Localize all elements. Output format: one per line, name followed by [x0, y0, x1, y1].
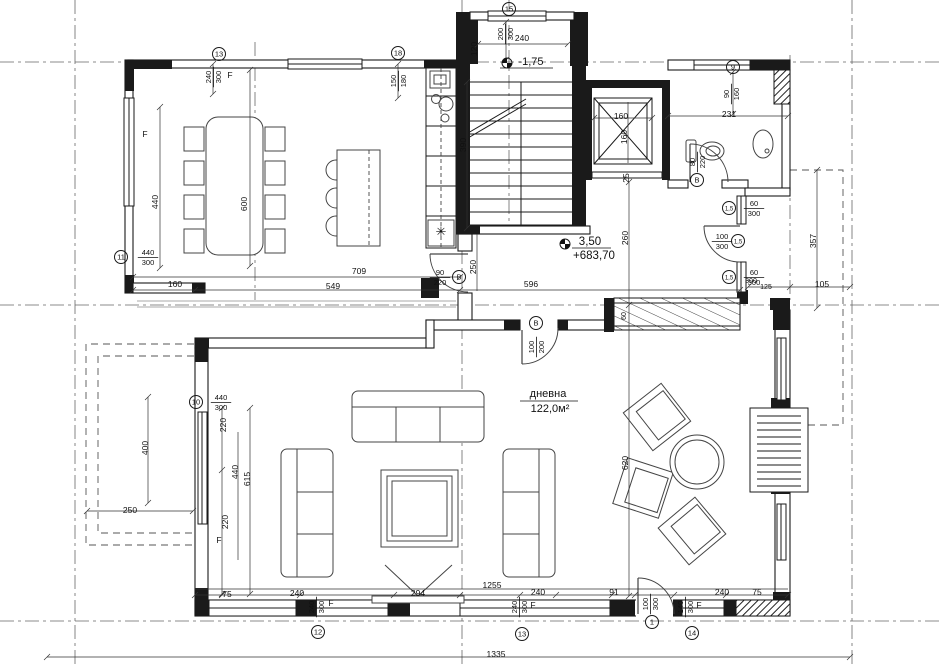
svg-text:13: 13 [215, 50, 223, 59]
dimension-fraction: 60300 [744, 199, 764, 218]
room-name: дневна [530, 388, 568, 400]
svg-text:150: 150 [389, 75, 398, 88]
room-label: дневна 122,0м² [520, 388, 578, 415]
svg-text:220: 220 [434, 278, 447, 287]
dimension-label: 250 [468, 260, 478, 274]
dimension-fraction: 80220 [688, 152, 707, 172]
dining-table [206, 117, 263, 255]
svg-text:240: 240 [307, 601, 316, 614]
chair [265, 229, 285, 253]
dimension-label: 357 [808, 234, 818, 248]
svg-text:60: 60 [750, 268, 758, 277]
dimension-label: 91 [609, 587, 619, 597]
svg-text:300: 300 [651, 598, 660, 611]
chair [184, 161, 204, 185]
svg-text:300: 300 [142, 258, 155, 267]
svg-text:300: 300 [317, 601, 326, 614]
dimension-label: F [216, 535, 221, 545]
dimension-label: F [530, 600, 535, 610]
room-area: 122,0м² [531, 403, 570, 415]
dimension-label: 620 [620, 456, 630, 470]
svg-text:15: 15 [505, 5, 513, 14]
dimension-label: 60 [621, 312, 628, 320]
dimension-label: 160 [168, 279, 182, 289]
dimension-label: 600 [239, 197, 249, 211]
fireplace [750, 408, 808, 492]
dimension-label: 240 [531, 587, 545, 597]
dimension-fraction: 150180 [389, 71, 408, 91]
dimension-label: 549 [326, 281, 340, 291]
svg-text:300: 300 [214, 71, 223, 84]
dimension-label: 440 [150, 195, 160, 209]
grid-marker: 13 [213, 48, 226, 61]
svg-text:160: 160 [732, 88, 741, 101]
svg-text:B: B [694, 176, 699, 185]
dimension-fraction: 100200 [527, 337, 546, 357]
svg-text:300: 300 [748, 209, 761, 218]
grid-marker: 13 [516, 628, 529, 641]
svg-text:9: 9 [731, 63, 735, 72]
svg-text:300: 300 [748, 278, 761, 287]
svg-text:13: 13 [518, 630, 526, 639]
svg-text:300: 300 [686, 601, 695, 614]
svg-text:300: 300 [716, 242, 729, 251]
dimension-label: 75 [222, 589, 232, 599]
floor-grate [614, 298, 740, 330]
dimension-fraction: 240300 [204, 67, 223, 87]
svg-text:440: 440 [215, 393, 228, 402]
grid-marker: 12 [312, 626, 325, 639]
svg-text:B: B [533, 319, 538, 328]
dimension-label: 390 [458, 138, 468, 152]
svg-text:200: 200 [496, 28, 505, 41]
dimension-fraction: 90220 [430, 268, 450, 287]
dimension-label: 220 [220, 515, 230, 529]
svg-text:90: 90 [436, 268, 444, 277]
kitchen-island [326, 150, 380, 246]
coffee-table [381, 470, 458, 547]
dimension-label: 240 [515, 33, 529, 43]
svg-text:180: 180 [399, 75, 408, 88]
dimension-label: F [696, 600, 701, 610]
floor-plan-svg: -1,75 3,50 +683,70 дневна 122,0м² 240120… [0, 0, 941, 664]
level-marker-hall: 3,50 +683,70 [560, 236, 615, 262]
dimension-label: 250 [123, 505, 137, 515]
chair [184, 229, 204, 253]
chair [265, 161, 285, 185]
dimension-fraction: 100300 [641, 594, 660, 614]
svg-text:200: 200 [537, 341, 546, 354]
dimension-label: F [227, 70, 232, 80]
level-symbol-icon [560, 239, 570, 249]
svg-text:80: 80 [688, 158, 697, 166]
dimension-label: 160 [619, 130, 629, 144]
armchair [658, 497, 726, 565]
dimension-label: 231 [722, 109, 736, 119]
svg-text:300: 300 [506, 28, 515, 41]
level-value: -1,75 [518, 56, 543, 68]
svg-text:100: 100 [527, 341, 536, 354]
dimension-label: 709 [352, 266, 366, 276]
dimension-label: 75 [752, 587, 762, 597]
dimension-fraction: 90160 [722, 84, 741, 104]
stairs [468, 82, 572, 226]
dimension-label: 240 [290, 588, 304, 598]
kitchen-counter [426, 68, 456, 248]
dimension-label: 596 [524, 279, 538, 289]
grid-marker: 14 [686, 627, 699, 640]
svg-text:220: 220 [698, 156, 707, 169]
dimension-label: 125 [760, 284, 772, 291]
svg-text:1,5: 1,5 [734, 240, 743, 246]
washbasin-icon [753, 130, 773, 158]
grid-marker: 1 [646, 616, 659, 629]
centerlines [0, 0, 941, 664]
chair [184, 127, 204, 151]
dimension-fraction: 440300 [211, 393, 231, 412]
svg-text:90: 90 [722, 90, 731, 98]
svg-text:B: B [456, 273, 461, 282]
chair [265, 127, 285, 151]
svg-text:240: 240 [204, 71, 213, 84]
dining-table-set [184, 117, 285, 255]
dimension-label: 120 [469, 42, 479, 56]
sofa [281, 449, 333, 577]
chair [265, 195, 285, 219]
dimension-label: 440 [230, 465, 240, 479]
grid-marker: B [691, 174, 704, 187]
sofa [503, 449, 555, 577]
dimension-label: 25 [621, 173, 631, 183]
dimension-label: 240 [715, 587, 729, 597]
svg-text:440: 440 [142, 248, 155, 257]
grid-marker: 1,5 [723, 202, 736, 215]
grid-marker: 1,5 [723, 271, 736, 284]
grid-marker: B [530, 317, 543, 330]
svg-text:1,5: 1,5 [725, 207, 734, 213]
svg-text:300: 300 [520, 601, 529, 614]
grid-marker: 18 [392, 47, 405, 60]
dimension-label: 1255 [483, 580, 502, 590]
dimension-label: 220 [218, 418, 228, 432]
svg-text:100: 100 [716, 232, 729, 241]
dimension-label: F [142, 129, 147, 139]
svg-text:14: 14 [688, 629, 696, 638]
overhang-lines [137, 301, 456, 307]
level-value: 3,50 [579, 236, 601, 248]
dimension-label: 160 [614, 111, 628, 121]
sofa [352, 391, 484, 442]
armchair-set [613, 383, 726, 565]
level-symbol-icon [502, 58, 512, 68]
dimension-label: 1335 [487, 649, 506, 659]
dimension-label: 294 [411, 588, 425, 598]
svg-text:100: 100 [641, 598, 650, 611]
svg-text:12: 12 [314, 628, 322, 637]
dimension-label: ✳ [436, 224, 447, 239]
svg-text:300: 300 [215, 403, 228, 412]
dimension-label: 260 [620, 231, 630, 245]
dimension-label: 105 [815, 279, 829, 289]
chair [184, 195, 204, 219]
level-elevation: +683,70 [573, 250, 615, 262]
dimension-fraction: 440300 [138, 248, 158, 267]
floor-plan: -1,75 3,50 +683,70 дневна 122,0м² 240120… [0, 0, 941, 664]
dimension-fraction: 200300 [496, 24, 515, 44]
dimension-fraction: 100300 [712, 232, 732, 251]
grid-marker: 1,5 [732, 235, 745, 248]
svg-text:60: 60 [750, 199, 758, 208]
svg-text:18: 18 [394, 49, 402, 58]
svg-text:1,5: 1,5 [725, 276, 734, 282]
svg-text:11: 11 [117, 253, 125, 262]
dimension-label: F [328, 598, 333, 608]
round-table [670, 435, 724, 489]
svg-text:10: 10 [192, 398, 200, 407]
svg-text:240: 240 [510, 601, 519, 614]
dimension-label: 400 [140, 441, 150, 455]
svg-text:140: 140 [676, 601, 685, 614]
dimension-label: 615 [242, 472, 252, 486]
svg-text:1: 1 [650, 618, 654, 627]
